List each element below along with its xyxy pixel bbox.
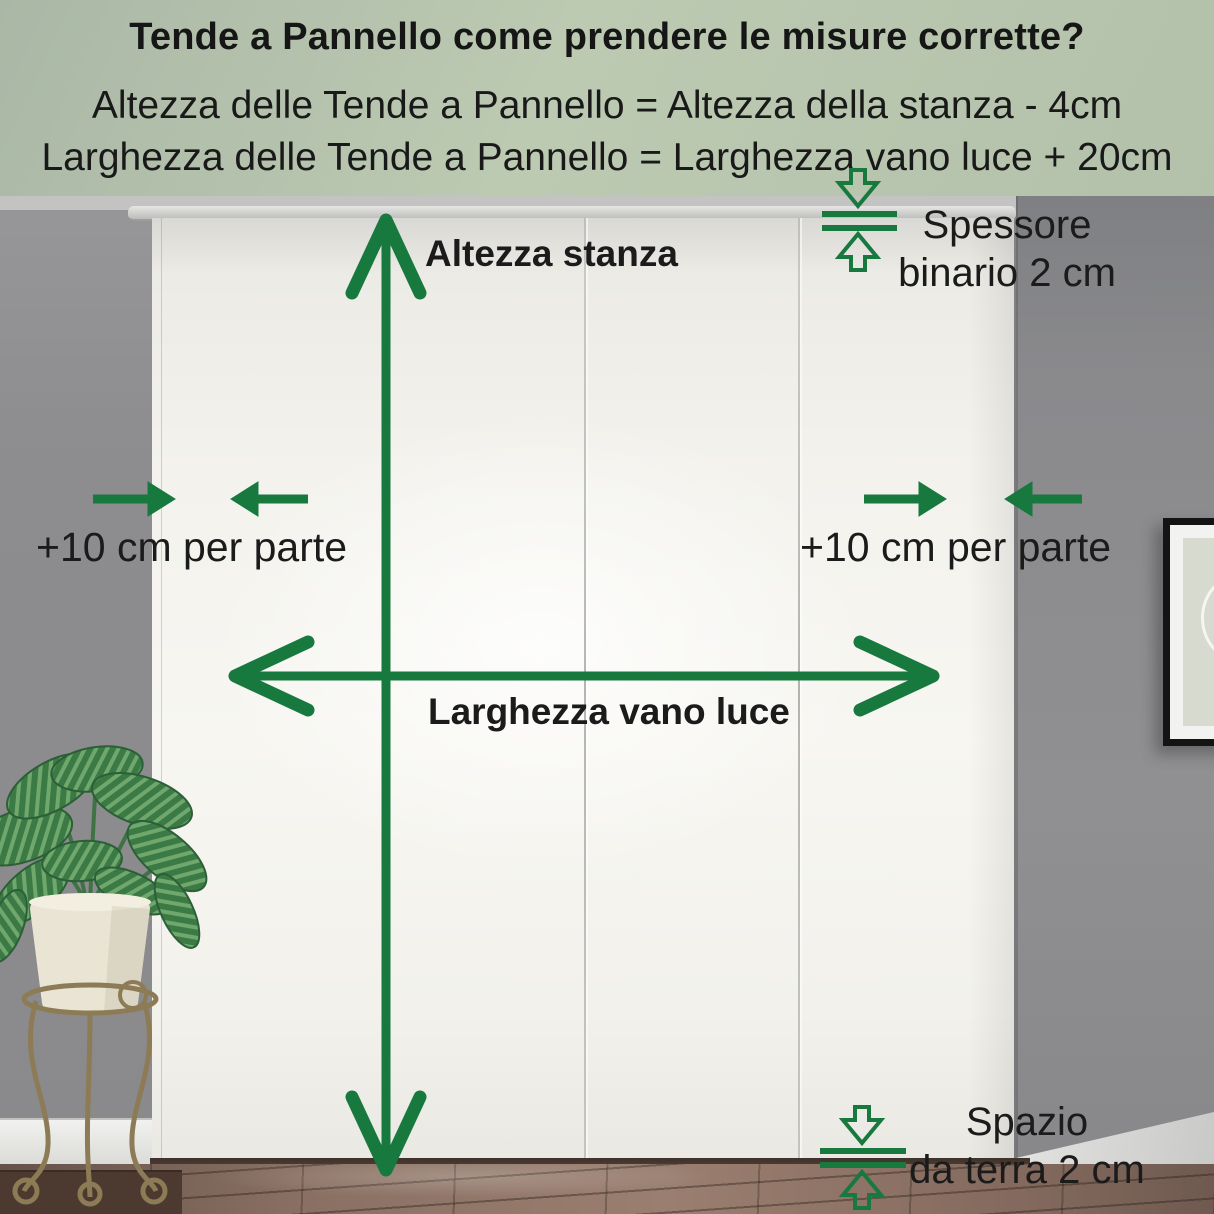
width-formula-text: Larghezza delle Tende a Pannello = Largh…	[0, 136, 1214, 180]
plant-pot	[29, 893, 151, 1013]
rail-thickness-label: Spessore binario 2 cm	[872, 201, 1142, 297]
room-height-label: Altezza stanza	[425, 233, 678, 275]
rail-thickness-label-line2: binario 2 cm	[872, 249, 1142, 297]
side-allowance-left-label: +10 cm per parte	[36, 524, 347, 571]
page-title: Tende a Pannello come prendere le misure…	[0, 16, 1214, 59]
panel-divider	[798, 218, 800, 1166]
floor-gap-label-line2: da terra 2 cm	[892, 1146, 1162, 1194]
rail-thickness-label-line1: Spessore	[872, 201, 1142, 249]
header: Tende a Pannello come prendere le misure…	[0, 0, 1214, 196]
side-allowance-right-label: +10 cm per parte	[800, 524, 1111, 571]
height-formula-text: Altezza delle Tende a Pannello = Altezza…	[0, 84, 1214, 128]
plant-stand	[15, 982, 165, 1204]
framed-artwork	[1183, 538, 1214, 726]
opening-width-label: Larghezza vano luce	[428, 691, 790, 733]
floor-gap-label-line1: Spazio	[892, 1098, 1162, 1146]
curtain-measuring-infographic: Tende a Pannello come prendere le misure…	[0, 0, 1214, 1214]
picture-frame	[1163, 518, 1214, 746]
potted-plant-image	[0, 741, 212, 1214]
floor-gap-label: Spazio da terra 2 cm	[892, 1098, 1162, 1194]
